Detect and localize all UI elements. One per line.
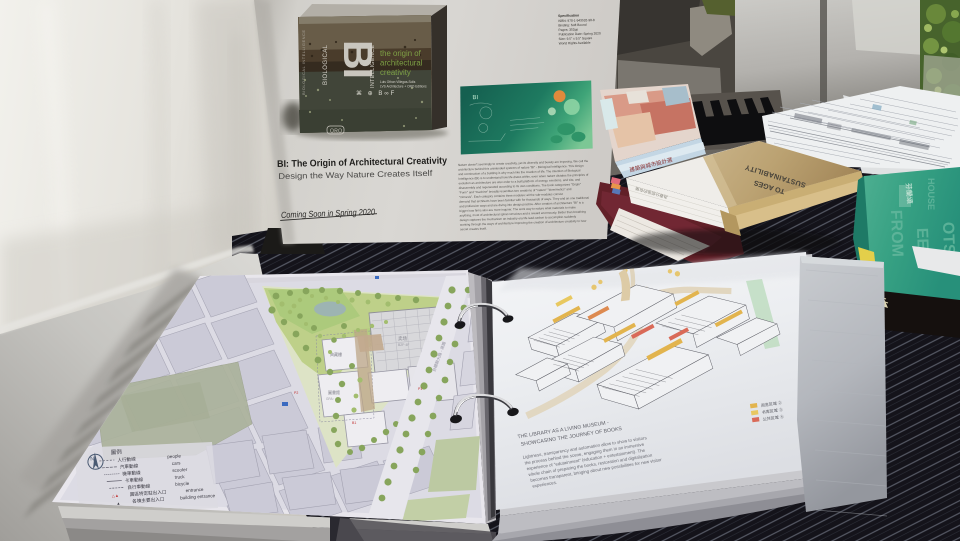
svg-text:HOUSE: HOUSE [926, 178, 936, 210]
svg-text:△▲: △▲ [112, 493, 119, 498]
svg-text:cars: cars [172, 460, 182, 466]
svg-text:truck: truck [175, 474, 186, 480]
svg-text:B2F·4F: B2F·4F [398, 343, 409, 347]
svg-text:bicycle: bicycle [175, 481, 190, 487]
svg-text:World Rights Available: World Rights Available [559, 41, 591, 46]
svg-text:Specification: Specification [558, 13, 579, 18]
svg-text:secret creates itself.: secret creates itself. [460, 227, 487, 232]
svg-text:P1: P1 [418, 387, 422, 391]
svg-text:圖書館: 圖書館 [328, 389, 340, 395]
svg-text:GFA²: GFA² [326, 397, 333, 401]
svg-text:INTELLIGENCE: INTELLIGENCE [370, 45, 376, 88]
svg-text:architectural: architectural [380, 59, 423, 68]
svg-text:BIOLOGICAL: BIOLOGICAL [323, 44, 329, 85]
svg-text:N: N [90, 456, 94, 462]
svg-text:FROM: FROM [887, 210, 906, 258]
svg-text:the origin of: the origin of [380, 49, 422, 58]
svg-text:卖场: 卖场 [398, 335, 407, 342]
svg-text:creativity: creativity [380, 68, 411, 77]
svg-text:ORO: ORO [330, 129, 342, 135]
svg-text:Luis Othon Villegas-Solis: Luis Othon Villegas-Solis [380, 80, 416, 84]
svg-text:BIOLOGICAL INTELLIGENCE: BIOLOGICAL INTELLIGENCE [301, 29, 306, 95]
svg-text:LVS Architecture + ORO Edition: LVS Architecture + ORO Editions [380, 85, 427, 89]
svg-text:P2: P2 [294, 391, 298, 395]
svg-text:BI: BI [472, 95, 478, 101]
svg-text:⌘ ⊕ B∞F: ⌘ ⊕ B∞F [356, 90, 396, 97]
svg-text:▲: ▲ [116, 501, 120, 506]
svg-text:B1: B1 [352, 421, 356, 425]
svg-text:people: people [167, 453, 182, 459]
